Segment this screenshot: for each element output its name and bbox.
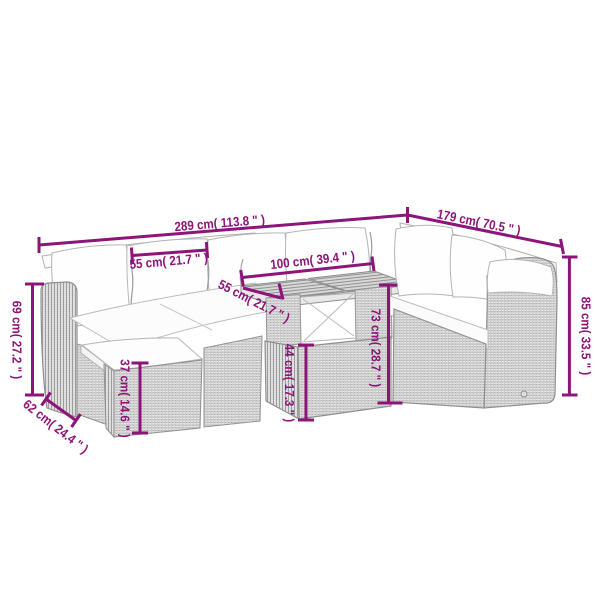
svg-text:44 cm( 17.3 " ): 44 cm( 17.3 " ) — [282, 344, 297, 422]
svg-text:69 cm( 27.2 " ): 69 cm( 27.2 " ) — [9, 301, 24, 379]
svg-text:73 cm( 28.7 " ): 73 cm( 28.7 " ) — [368, 309, 383, 387]
svg-text:37 cm( 14.6 " ): 37 cm( 14.6 " ) — [117, 359, 132, 437]
svg-text:85 cm( 33.5 " ): 85 cm( 33.5 " ) — [578, 297, 593, 375]
